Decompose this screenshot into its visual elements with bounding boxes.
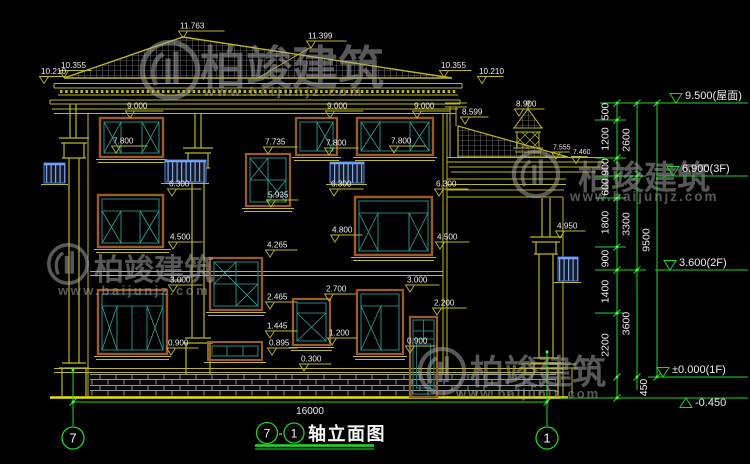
watermark-url: www.baijunjz.com <box>203 84 364 99</box>
svg-text:9.000: 9.000 <box>327 102 348 111</box>
grid-bubble-7-label: 7 <box>69 431 76 446</box>
elevation-mark: 10.210 <box>40 67 67 84</box>
elevation-mark: 7.800 <box>325 139 359 156</box>
watermark-logo-icon <box>514 152 558 196</box>
svg-text:9.000: 9.000 <box>414 102 435 111</box>
svg-text:4.265: 4.265 <box>267 241 288 250</box>
grid-bubble-1-label: 1 <box>543 431 550 446</box>
elevation-mark: 8.599 <box>461 108 489 125</box>
elevation-mark: 11.763 <box>179 22 225 39</box>
svg-text:4.500: 4.500 <box>437 233 458 242</box>
svg-text:1.200: 1.200 <box>329 329 350 338</box>
drawing-canvas: 柏竣建筑 www.baijunjz.com 柏竣建筑 www.baijunjz.… <box>0 0 750 464</box>
cad-elevation-drawing: 柏竣建筑 www.baijunjz.com 柏竣建筑 www.baijunjz.… <box>0 0 750 464</box>
dim-label: 3300 <box>621 212 633 236</box>
dim-label: 1200 <box>600 127 612 151</box>
elevation-mark: 10.210 <box>478 67 505 84</box>
svg-text:9.000: 9.000 <box>127 102 148 111</box>
dim-label: 3600 <box>621 312 633 336</box>
watermark-url: www.baijunjz.com <box>569 189 719 204</box>
svg-text:3.000: 3.000 <box>170 276 191 285</box>
svg-text:10.355: 10.355 <box>441 61 466 70</box>
dim-label: 600 <box>600 178 612 196</box>
svg-text:11.399: 11.399 <box>308 32 333 41</box>
svg-text:10.210: 10.210 <box>41 67 66 76</box>
svg-text:±0.000(1F): ±0.000(1F) <box>672 364 726 376</box>
svg-text:2.700: 2.700 <box>326 285 347 294</box>
column-left <box>59 104 89 396</box>
dim-label: 500 <box>600 103 612 121</box>
elevation-mark: 10.355 <box>440 61 472 78</box>
elevation-mark: 4.265 <box>266 241 298 258</box>
svg-text:2.200: 2.200 <box>434 299 455 308</box>
dim-label: 900 <box>600 158 612 176</box>
elevation-mark: 4.500 <box>436 233 470 250</box>
dim-label: 1800 <box>600 211 612 235</box>
svg-text:0.300: 0.300 <box>301 355 322 364</box>
window <box>94 195 171 253</box>
railing <box>44 163 65 183</box>
dim-label: 450 <box>638 379 650 397</box>
svg-text:7.460: 7.460 <box>573 149 591 156</box>
svg-text:11.763: 11.763 <box>180 22 205 31</box>
dim-label: 9500 <box>641 228 653 252</box>
total-width-dim: 16000 <box>296 406 324 417</box>
window <box>206 258 266 316</box>
title-axis-end: 1 <box>291 427 298 441</box>
window <box>94 290 171 360</box>
svg-text:8.599: 8.599 <box>462 108 483 117</box>
elevation-mark: 4.800 <box>331 226 363 243</box>
dim-label: 2600 <box>621 128 633 152</box>
elevation-mark: 5.935 <box>267 191 299 208</box>
svg-text:10.210: 10.210 <box>479 67 504 76</box>
svg-text:8.900: 8.900 <box>516 100 537 109</box>
svg-text:7.800: 7.800 <box>326 139 347 148</box>
svg-text:3.000: 3.000 <box>407 276 428 285</box>
watermark: 柏竣建筑 www.baijunjz.com <box>420 349 606 401</box>
watermark-url: www.baijunjz.com <box>455 386 600 401</box>
elevation-mark: 0.900 <box>167 339 199 356</box>
drawing-title: 7 - 1 轴立面图 <box>255 423 386 450</box>
elevation-mark: 3.000 <box>406 276 440 293</box>
svg-text:0.895: 0.895 <box>269 339 290 348</box>
svg-text:4.500: 4.500 <box>170 233 191 242</box>
title-text: 轴立面图 <box>308 423 386 444</box>
svg-text:7.800: 7.800 <box>391 137 412 146</box>
watermark: 柏竣建筑 www.baijunjz.com <box>514 152 719 204</box>
svg-text:6.300: 6.300 <box>331 180 352 189</box>
svg-text:0.900: 0.900 <box>407 337 428 346</box>
level-marker: 9.500(屋面) <box>600 89 748 103</box>
svg-text:7.555: 7.555 <box>553 145 571 152</box>
elevation-mark: 4.950 <box>556 222 586 239</box>
elevation-mark: 4.500 <box>169 233 203 250</box>
svg-text:9.500(屋面): 9.500(屋面) <box>685 89 742 102</box>
window <box>289 299 334 351</box>
svg-text:7.800: 7.800 <box>113 137 134 146</box>
elevation-mark: 1.200 <box>328 329 358 346</box>
dim-label: 1400 <box>600 280 612 304</box>
railing <box>558 257 578 281</box>
svg-text:6.900(3F): 6.900(3F) <box>682 163 730 175</box>
svg-text:1.445: 1.445 <box>267 322 288 331</box>
svg-text:2.465: 2.465 <box>267 293 288 302</box>
level-marker: -0.450 <box>672 397 748 409</box>
window <box>353 290 407 360</box>
title-axis-start: 7 <box>264 427 271 441</box>
svg-text:3.600(2F): 3.600(2F) <box>679 257 727 269</box>
level-marker: ±0.000(1F) <box>648 364 748 377</box>
svg-text:0.900: 0.900 <box>168 339 189 348</box>
title-axis-separator: - <box>279 426 283 440</box>
svg-text:6.300: 6.300 <box>436 180 457 189</box>
elevation-mark: 7.735 <box>264 138 298 155</box>
svg-text:7.735: 7.735 <box>265 138 286 147</box>
window <box>204 342 266 363</box>
elevation-mark: 2.200 <box>433 299 467 316</box>
watermark-logo-icon <box>49 245 87 283</box>
watermark-brand: 柏竣建筑 <box>94 253 214 287</box>
svg-text:6.300: 6.300 <box>169 180 190 189</box>
svg-text:4.950: 4.950 <box>557 222 578 231</box>
svg-text:5.935: 5.935 <box>268 191 289 200</box>
svg-text:4.800: 4.800 <box>332 226 353 235</box>
window <box>351 197 436 261</box>
dim-label: 900 <box>600 250 612 268</box>
dim-label: 2200 <box>600 333 612 357</box>
elevation-mark: 6.300 <box>435 180 469 197</box>
svg-text:-0.450: -0.450 <box>695 397 726 409</box>
level-marker: 3.600(2F) <box>655 257 748 270</box>
